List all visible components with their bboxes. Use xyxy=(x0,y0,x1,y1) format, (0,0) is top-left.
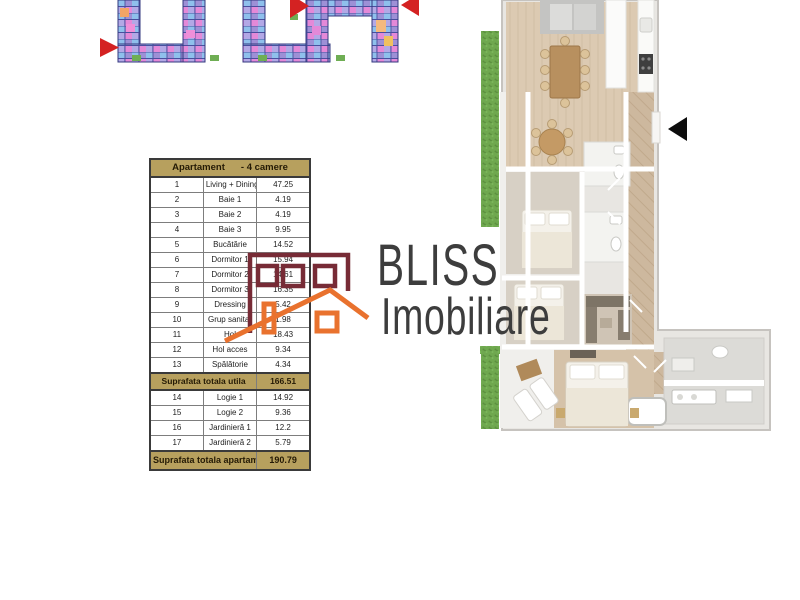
room-name: Baie 3 xyxy=(203,223,256,238)
row-number: 10 xyxy=(150,313,203,328)
room-name: Dormitor 2 xyxy=(203,268,256,283)
table-row: 7Dormitor 214.61 xyxy=(150,268,310,283)
table-subtitle: - 4 camere xyxy=(241,163,288,173)
toilet-icon xyxy=(611,237,621,251)
room-name: Baie 1 xyxy=(203,193,256,208)
room-name: Dormitor 3 xyxy=(203,283,256,298)
table-row: 6Dormitor 115.94 xyxy=(150,253,310,268)
entrance-arrow-icon xyxy=(668,117,687,141)
sink-icon xyxy=(614,146,624,154)
room-name: Spălătorie xyxy=(203,358,256,374)
row-number: 3 xyxy=(150,208,203,223)
kitchen-sink-icon xyxy=(640,18,652,32)
area-table-body: 1Living + Dining47.252Baie 14.193Baie 24… xyxy=(150,177,310,470)
room-area: 4.34 xyxy=(257,358,310,374)
row-number: 16 xyxy=(150,421,203,436)
row-number: 11 xyxy=(150,328,203,343)
room-name: Jardinieră 2 xyxy=(203,436,256,452)
kitchen-counter xyxy=(638,0,654,92)
room-area: 15.94 xyxy=(257,253,310,268)
grand-total-row-value: 190.79 xyxy=(257,451,310,470)
kitchen-island xyxy=(606,0,626,88)
sofa-icon xyxy=(540,0,604,34)
room-area: 5.42 xyxy=(257,298,310,313)
table-row: 8Dormitor 316.35 xyxy=(150,283,310,298)
room-area: 47.25 xyxy=(257,177,310,193)
row-number: 5 xyxy=(150,238,203,253)
room-name: Grup sanitar xyxy=(203,313,256,328)
unit-cell xyxy=(376,20,386,32)
room-area: 4.19 xyxy=(257,208,310,223)
table-row: 2Baie 14.19 xyxy=(150,193,310,208)
room-name: Dressing xyxy=(203,298,256,313)
row-number: 12 xyxy=(150,343,203,358)
laundry-and-sanitary xyxy=(664,338,764,424)
building-site-plan xyxy=(90,0,426,66)
red-arrow-right-icon xyxy=(401,0,419,16)
row-number: 6 xyxy=(150,253,203,268)
laundry-counter xyxy=(672,358,694,371)
table-row: 1Living + Dining47.25 xyxy=(150,177,310,193)
unit-cell xyxy=(186,30,195,38)
apartment-floor-plan-3d xyxy=(458,0,798,440)
bed-2-icon xyxy=(514,284,564,340)
table-row: 12Hol acces9.34 xyxy=(150,343,310,358)
toilet-icon xyxy=(712,346,728,358)
nightstand-icon xyxy=(556,408,565,418)
subtotal-row-value: 166.51 xyxy=(257,373,310,390)
unit-cell xyxy=(384,36,393,46)
grand-total-row-label: Suprafata totala apartament xyxy=(150,451,257,470)
stove-icon xyxy=(639,54,653,74)
subtotal-row-label: Suprafata totala utila xyxy=(150,373,257,390)
room-area: 16.35 xyxy=(257,283,310,298)
table-title: Apartament xyxy=(172,163,225,173)
room-name: Logie 2 xyxy=(203,406,256,421)
room-name: Jardinieră 1 xyxy=(203,421,256,436)
row-number: 9 xyxy=(150,298,203,313)
row-number: 8 xyxy=(150,283,203,298)
table-row: 10Grup sanitar1.98 xyxy=(150,313,310,328)
room-area: 14.92 xyxy=(257,390,310,406)
sink-icon xyxy=(726,390,752,402)
room-name: Hol xyxy=(203,328,256,343)
wardrobe-icon xyxy=(586,307,597,343)
wardrobe-icon xyxy=(586,296,630,307)
room-area: 1.98 xyxy=(257,313,310,328)
row-number: 2 xyxy=(150,193,203,208)
table-header-row: Apartament - 4 camere xyxy=(150,159,310,177)
row-number: 14 xyxy=(150,390,203,406)
room-area: 9.34 xyxy=(257,343,310,358)
room-area: 18.43 xyxy=(257,328,310,343)
table-row: 15Logie 29.36 xyxy=(150,406,310,421)
real-estate-flyer: Apartament - 4 camere 1Living + Dining47… xyxy=(0,0,800,600)
table-row: 4Baie 39.95 xyxy=(150,223,310,238)
row-number: 13 xyxy=(150,358,203,374)
row-number: 1 xyxy=(150,177,203,193)
table-row: 11Hol18.43 xyxy=(150,328,310,343)
table-row: 13Spălătorie4.34 xyxy=(150,358,310,374)
building-footprint xyxy=(118,0,398,62)
room-area: 5.79 xyxy=(257,436,310,452)
nightstand-icon xyxy=(630,408,639,418)
room-name: Living + Dining xyxy=(203,177,256,193)
entrance-door xyxy=(652,112,660,143)
row-number: 4 xyxy=(150,223,203,238)
row-number: 7 xyxy=(150,268,203,283)
unit-cell xyxy=(126,24,135,32)
table-row: 3Baie 24.19 xyxy=(150,208,310,223)
apartment-area-table: Apartament - 4 camere 1Living + Dining47… xyxy=(149,158,311,471)
room-name: Logie 1 xyxy=(203,390,256,406)
row-number: 17 xyxy=(150,436,203,452)
unit-cell xyxy=(120,8,129,17)
room-area: 4.19 xyxy=(257,193,310,208)
table-row: 9Dressing5.42 xyxy=(150,298,310,313)
room-area: 12.2 xyxy=(257,421,310,436)
bathroom-2 xyxy=(584,212,628,262)
room-name: Baie 2 xyxy=(203,208,256,223)
red-arrow-left-icon xyxy=(100,38,119,57)
room-area: 14.61 xyxy=(257,268,310,283)
table-row: 5Bucătărie14.52 xyxy=(150,238,310,253)
grand-total-row: Suprafata totala apartament190.79 xyxy=(150,451,310,470)
bathroom-1 xyxy=(584,142,630,186)
table-row: 16Jardinieră 112.2 xyxy=(150,421,310,436)
garden-strip-bottom xyxy=(480,346,500,430)
room-area: 9.36 xyxy=(257,406,310,421)
room-name: Bucătărie xyxy=(203,238,256,253)
row-number: 15 xyxy=(150,406,203,421)
garden-strip-top xyxy=(480,30,500,228)
table-row: 17Jardinieră 25.79 xyxy=(150,436,310,452)
dressing-table xyxy=(600,318,612,328)
subtotal-row: Suprafata totala utila166.51 xyxy=(150,373,310,390)
room-name: Hol acces xyxy=(203,343,256,358)
table-row: 14Logie 114.92 xyxy=(150,390,310,406)
room-name: Dormitor 1 xyxy=(203,253,256,268)
unit-cell xyxy=(312,26,321,35)
vanity-icon xyxy=(570,350,596,358)
room-area: 9.95 xyxy=(257,223,310,238)
room-area: 14.52 xyxy=(257,238,310,253)
